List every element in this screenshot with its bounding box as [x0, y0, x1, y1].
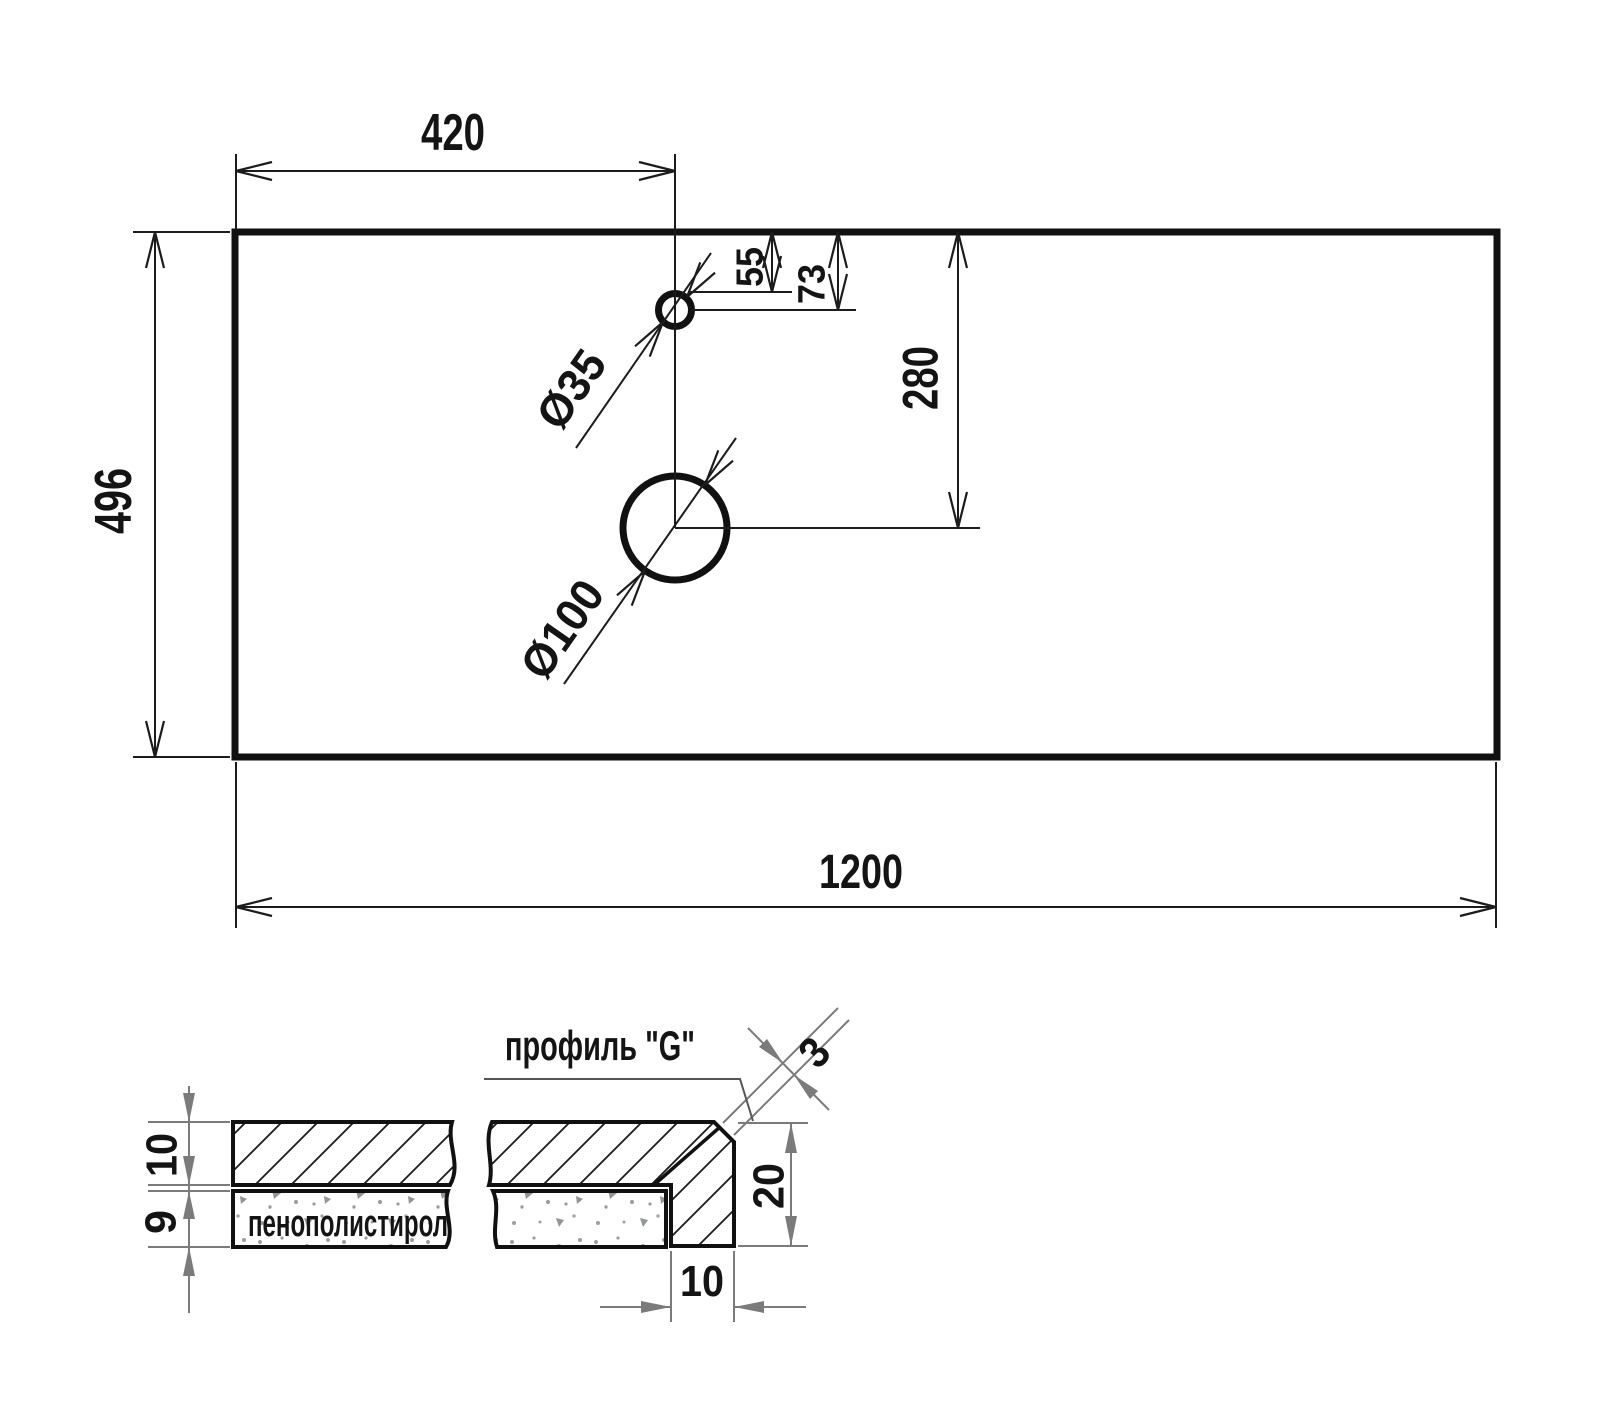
dim-foam-9: 9	[136, 1210, 185, 1234]
top-view: 420 496 1200 55 73 280 Ø35 Ø100	[85, 104, 1497, 928]
dim-top-layer-10: 10	[137, 1133, 186, 1177]
dim-dia-35: Ø35	[526, 340, 617, 439]
section-foam-layer-right	[493, 1191, 666, 1247]
large-hole-diameter-leader	[564, 438, 736, 684]
technical-drawing-page: 420 496 1200 55 73 280 Ø35 Ø100	[0, 0, 1600, 1415]
small-hole-diameter-leader	[576, 253, 711, 448]
dim-420: 420	[421, 104, 485, 162]
dim-dia-100: Ø100	[510, 570, 615, 688]
section-title: профиль "G"	[505, 1022, 695, 1069]
dim-edge-20: 20	[744, 1163, 793, 1209]
panel-outline	[235, 232, 1497, 757]
dim-1200: 1200	[819, 846, 903, 899]
dim-55: 55	[729, 247, 771, 287]
dim-edge-10: 10	[680, 1257, 724, 1306]
profile-title-leader	[484, 1079, 753, 1121]
dim-496: 496	[85, 468, 143, 534]
section-top-layer-left	[233, 1122, 455, 1185]
dim-73: 73	[791, 264, 833, 304]
foam-material-label: пенополистирол	[248, 1203, 448, 1245]
dim-280: 280	[893, 346, 949, 410]
section-view: профиль "G" пенополистирол 10 9 20 10 3	[136, 1008, 849, 1322]
drawing-canvas: 420 496 1200 55 73 280 Ø35 Ø100	[0, 0, 1600, 1415]
